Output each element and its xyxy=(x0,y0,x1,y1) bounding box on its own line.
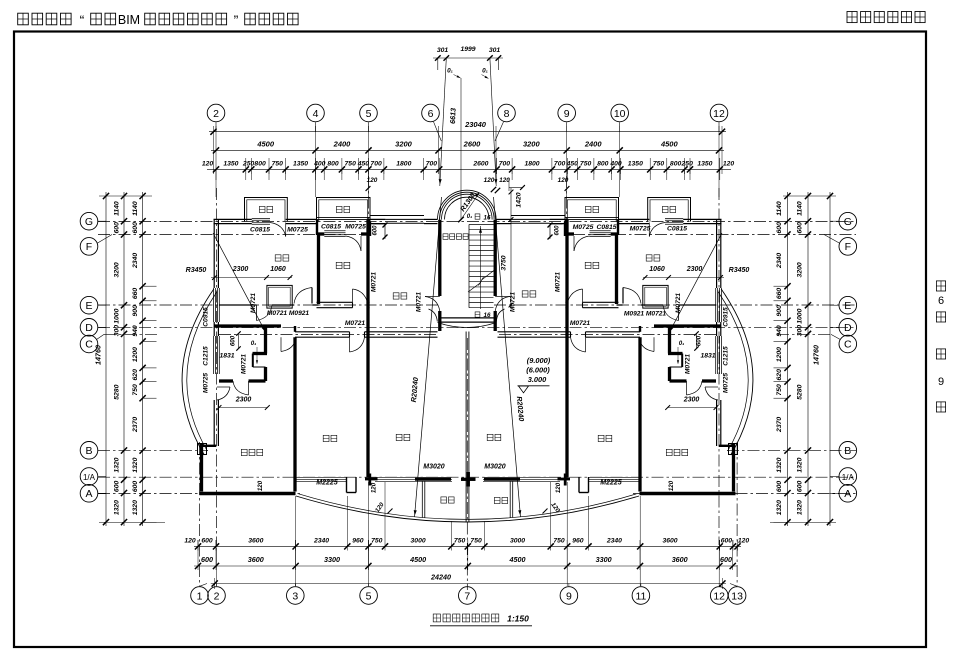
svg-text:M0721: M0721 xyxy=(416,292,423,312)
svg-text:600: 600 xyxy=(720,555,732,564)
svg-text:E: E xyxy=(85,300,92,312)
svg-text:3: 3 xyxy=(292,590,298,602)
svg-text:120: 120 xyxy=(371,482,378,493)
svg-text:6: 6 xyxy=(938,295,944,307)
svg-text:700: 700 xyxy=(370,160,382,167)
svg-text:16: 16 xyxy=(484,215,491,222)
svg-text:600: 600 xyxy=(230,335,237,346)
svg-text:(9.000): (9.000) xyxy=(527,356,551,365)
svg-text:9: 9 xyxy=(938,376,944,388)
svg-text:4500: 4500 xyxy=(409,555,426,564)
svg-text:301: 301 xyxy=(489,47,501,54)
svg-text:750: 750 xyxy=(470,537,482,544)
svg-text:2: 2 xyxy=(213,108,219,120)
svg-text:C: C xyxy=(85,339,93,351)
svg-text:750: 750 xyxy=(580,160,592,167)
svg-text:2300: 2300 xyxy=(232,266,249,273)
svg-text:600: 600 xyxy=(201,555,213,564)
svg-text:1060: 1060 xyxy=(270,266,286,273)
svg-text:M0725: M0725 xyxy=(287,227,308,234)
svg-text:120: 120 xyxy=(184,537,196,544)
svg-text:14760: 14760 xyxy=(94,345,103,365)
svg-text:750: 750 xyxy=(454,537,466,544)
svg-text:2: 2 xyxy=(214,590,220,602)
svg-text:600: 600 xyxy=(201,537,213,544)
svg-text:D: D xyxy=(85,322,93,334)
svg-text:1320: 1320 xyxy=(776,457,783,472)
svg-text:750: 750 xyxy=(272,160,284,167)
svg-text:940: 940 xyxy=(132,325,139,337)
svg-text:120: 120 xyxy=(738,537,750,544)
svg-text:3600: 3600 xyxy=(672,555,688,564)
svg-text:3750: 3750 xyxy=(501,255,508,270)
svg-text:700: 700 xyxy=(499,160,511,167)
svg-text:M0725: M0725 xyxy=(573,224,594,231)
svg-text:2600: 2600 xyxy=(472,160,488,167)
svg-text:M2225: M2225 xyxy=(600,480,622,487)
svg-text:2300: 2300 xyxy=(686,266,703,273)
svg-text:700: 700 xyxy=(426,160,438,167)
svg-text:600: 600 xyxy=(132,481,139,493)
svg-text:C0915: C0915 xyxy=(723,307,730,327)
svg-text:16: 16 xyxy=(484,312,491,319)
svg-text:3200: 3200 xyxy=(523,140,541,149)
svg-text:1060: 1060 xyxy=(649,266,665,273)
svg-text:M0721: M0721 xyxy=(685,354,692,374)
svg-text:120: 120 xyxy=(367,177,378,184)
svg-text:M3020: M3020 xyxy=(484,464,506,471)
svg-text:2300: 2300 xyxy=(235,397,252,404)
svg-text:M3020: M3020 xyxy=(423,464,445,471)
svg-text:2600: 2600 xyxy=(463,140,482,149)
svg-text:2370: 2370 xyxy=(132,417,139,433)
svg-text:R3450: R3450 xyxy=(186,267,207,274)
svg-text:12: 12 xyxy=(713,590,725,602)
svg-text:M0721: M0721 xyxy=(371,272,378,292)
svg-text:4500: 4500 xyxy=(256,140,275,149)
svg-text:620: 620 xyxy=(132,369,139,381)
svg-text:1320: 1320 xyxy=(797,457,804,472)
svg-text:M0721: M0721 xyxy=(570,320,590,327)
svg-text:120: 120 xyxy=(555,482,562,493)
svg-text:M0721: M0721 xyxy=(250,293,257,313)
svg-text:940: 940 xyxy=(776,325,783,337)
svg-text:M0721: M0721 xyxy=(345,320,365,327)
svg-text:1999: 1999 xyxy=(460,46,475,53)
svg-text:(6.000): (6.000) xyxy=(526,366,550,375)
svg-text:600: 600 xyxy=(555,225,561,236)
svg-text:2340: 2340 xyxy=(606,537,622,544)
svg-text:1350: 1350 xyxy=(697,160,712,167)
svg-text:750: 750 xyxy=(345,160,357,167)
svg-text:1200: 1200 xyxy=(132,347,139,362)
svg-text:3.000: 3.000 xyxy=(528,375,547,384)
svg-text:M2225: M2225 xyxy=(316,480,338,487)
svg-text:1320: 1320 xyxy=(113,457,120,472)
svg-text:3200: 3200 xyxy=(395,140,413,149)
svg-text:5280: 5280 xyxy=(797,384,804,399)
svg-text:4500: 4500 xyxy=(660,140,679,149)
svg-text:750: 750 xyxy=(776,384,783,396)
svg-text:23040: 23040 xyxy=(464,120,487,129)
svg-text:900: 900 xyxy=(776,305,783,317)
svg-text:400: 400 xyxy=(313,160,326,167)
svg-text:250: 250 xyxy=(681,160,694,167)
svg-text:C: C xyxy=(844,339,852,351)
svg-text:BIM: BIM xyxy=(118,13,140,27)
svg-text:B: B xyxy=(85,445,92,457)
svg-text:R3450: R3450 xyxy=(729,267,750,274)
svg-text:F: F xyxy=(86,241,92,253)
svg-text:4: 4 xyxy=(313,108,319,120)
svg-text:1320: 1320 xyxy=(132,457,139,472)
svg-text:0₁: 0₁ xyxy=(467,214,472,220)
svg-text:2400: 2400 xyxy=(333,140,352,149)
svg-text:2400: 2400 xyxy=(584,140,603,149)
svg-text:9: 9 xyxy=(566,590,572,602)
svg-text:0₁: 0₁ xyxy=(482,68,488,75)
svg-text:9: 9 xyxy=(564,108,570,120)
svg-text:M0921 M0721: M0921 M0721 xyxy=(624,311,666,318)
svg-text:960: 960 xyxy=(572,537,584,544)
svg-text:3600: 3600 xyxy=(248,555,264,564)
svg-text:600: 600 xyxy=(113,481,120,493)
svg-text:13: 13 xyxy=(731,590,743,602)
svg-text:1831: 1831 xyxy=(219,353,234,360)
svg-text:1320: 1320 xyxy=(113,500,120,515)
svg-text:11: 11 xyxy=(635,590,646,602)
svg-text:5280: 5280 xyxy=(113,384,120,399)
svg-text:M0721: M0721 xyxy=(510,292,517,312)
svg-text:1800: 1800 xyxy=(396,160,411,167)
svg-text:400: 400 xyxy=(609,160,622,167)
svg-text:2340: 2340 xyxy=(776,253,783,269)
svg-text:10: 10 xyxy=(614,108,626,120)
svg-text:0₁: 0₁ xyxy=(447,68,453,75)
svg-text:750: 750 xyxy=(653,160,665,167)
svg-text:8: 8 xyxy=(504,108,510,120)
svg-text:A: A xyxy=(85,488,92,500)
svg-text:3000: 3000 xyxy=(411,537,426,544)
svg-text:0₁: 0₁ xyxy=(679,340,685,347)
svg-text:2340: 2340 xyxy=(313,537,329,544)
svg-text:1420: 1420 xyxy=(516,192,523,207)
svg-text:600: 600 xyxy=(132,222,139,234)
svg-text:C1215: C1215 xyxy=(203,346,210,366)
svg-text:14760: 14760 xyxy=(812,345,821,365)
svg-text:3200: 3200 xyxy=(797,262,804,277)
svg-text:1/A: 1/A xyxy=(83,473,96,482)
svg-text:12: 12 xyxy=(713,108,725,120)
svg-text:1000: 1000 xyxy=(797,308,804,323)
svg-text:3000: 3000 xyxy=(510,537,525,544)
svg-text:7: 7 xyxy=(464,590,470,602)
svg-text:C0815: C0815 xyxy=(321,224,341,231)
svg-text:800: 800 xyxy=(670,160,682,167)
svg-text:120: 120 xyxy=(558,177,569,184)
svg-text:120: 120 xyxy=(668,480,675,491)
svg-text:6: 6 xyxy=(428,108,434,120)
svg-text:M0721: M0721 xyxy=(675,293,682,313)
svg-text:M0721: M0721 xyxy=(241,354,248,374)
svg-text:600: 600 xyxy=(776,222,783,234)
svg-text:120: 120 xyxy=(499,177,510,184)
svg-text:600: 600 xyxy=(696,335,703,346)
svg-text:800: 800 xyxy=(597,160,609,167)
svg-text:M0721 M0921: M0721 M0921 xyxy=(267,310,309,317)
svg-text:1140: 1140 xyxy=(113,201,120,216)
svg-text:660: 660 xyxy=(132,288,139,300)
svg-text:750: 750 xyxy=(132,384,139,396)
svg-text:1140: 1140 xyxy=(776,201,783,216)
svg-text:1/A: 1/A xyxy=(842,473,855,482)
svg-text:600: 600 xyxy=(373,225,379,236)
svg-text:1320: 1320 xyxy=(797,500,804,515)
svg-text:B: B xyxy=(844,445,851,457)
svg-text:620: 620 xyxy=(776,369,783,381)
svg-text:1350: 1350 xyxy=(628,160,643,167)
svg-text:1831: 1831 xyxy=(700,353,715,360)
svg-text:600: 600 xyxy=(797,481,804,493)
svg-text:750: 750 xyxy=(371,537,383,544)
svg-text:M0725: M0725 xyxy=(630,226,651,233)
svg-text:600: 600 xyxy=(797,222,804,234)
svg-text:3300: 3300 xyxy=(324,555,340,564)
svg-text:C0815: C0815 xyxy=(250,227,270,234)
svg-text:3300: 3300 xyxy=(596,555,612,564)
svg-text:”: ” xyxy=(234,12,239,28)
svg-text:5: 5 xyxy=(366,108,372,120)
svg-text:M0725: M0725 xyxy=(203,373,210,393)
svg-text:2370: 2370 xyxy=(776,417,783,433)
svg-text:C0815: C0815 xyxy=(667,226,687,233)
svg-text:301: 301 xyxy=(437,47,449,54)
svg-text:2300: 2300 xyxy=(683,397,700,404)
svg-text:2340: 2340 xyxy=(132,253,139,269)
svg-text:24240: 24240 xyxy=(430,572,451,581)
svg-text:1350: 1350 xyxy=(223,160,238,167)
svg-text:960: 960 xyxy=(352,537,364,544)
svg-text:F: F xyxy=(845,241,851,253)
svg-text:1140: 1140 xyxy=(132,201,139,216)
svg-text:5: 5 xyxy=(366,590,372,602)
svg-text:3200: 3200 xyxy=(113,262,120,277)
svg-text:1320: 1320 xyxy=(776,500,783,515)
svg-text:660: 660 xyxy=(776,288,783,300)
svg-text:4500: 4500 xyxy=(509,555,526,564)
svg-text:1200: 1200 xyxy=(776,347,783,362)
svg-text:M0725: M0725 xyxy=(723,373,730,393)
svg-text:“: “ xyxy=(80,12,85,28)
svg-text:700: 700 xyxy=(554,160,566,167)
svg-text:6613: 6613 xyxy=(448,108,458,124)
svg-text:G: G xyxy=(85,216,93,228)
svg-text:600: 600 xyxy=(776,481,783,493)
svg-text:3600: 3600 xyxy=(248,537,263,544)
svg-text:M0721: M0721 xyxy=(555,272,562,292)
svg-text:1140: 1140 xyxy=(797,201,804,216)
svg-text:C1215: C1215 xyxy=(723,346,730,366)
svg-text:C0815: C0815 xyxy=(596,224,616,231)
svg-text:600: 600 xyxy=(113,222,120,234)
svg-text:800: 800 xyxy=(254,160,266,167)
svg-text:1:150: 1:150 xyxy=(507,614,529,624)
svg-text:800: 800 xyxy=(327,160,339,167)
svg-text:600: 600 xyxy=(721,537,733,544)
svg-text:1: 1 xyxy=(197,590,203,602)
svg-text:C0915: C0915 xyxy=(203,307,210,327)
svg-text:120: 120 xyxy=(723,160,735,167)
svg-text:250: 250 xyxy=(242,160,255,167)
svg-text:0₁: 0₁ xyxy=(251,340,257,347)
svg-text:120: 120 xyxy=(484,177,495,184)
svg-text:1000: 1000 xyxy=(113,308,120,323)
svg-text:1350: 1350 xyxy=(293,160,308,167)
svg-text:120: 120 xyxy=(257,480,264,491)
svg-text:120: 120 xyxy=(202,160,214,167)
svg-text:3600: 3600 xyxy=(662,537,677,544)
svg-text:E: E xyxy=(844,300,851,312)
svg-text:900: 900 xyxy=(132,305,139,317)
svg-text:750: 750 xyxy=(553,537,565,544)
svg-text:M0725: M0725 xyxy=(345,224,366,231)
svg-text:1320: 1320 xyxy=(132,500,139,515)
svg-text:1800: 1800 xyxy=(524,160,539,167)
